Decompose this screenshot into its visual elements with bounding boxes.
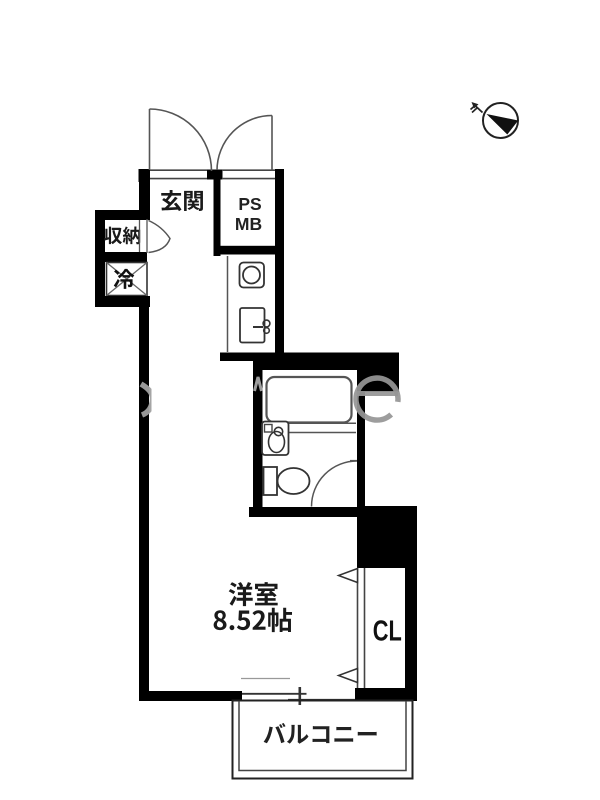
svg-text:CL: CL <box>373 616 402 648</box>
svg-text:MB: MB <box>235 214 262 234</box>
svg-text:PS: PS <box>238 194 261 214</box>
